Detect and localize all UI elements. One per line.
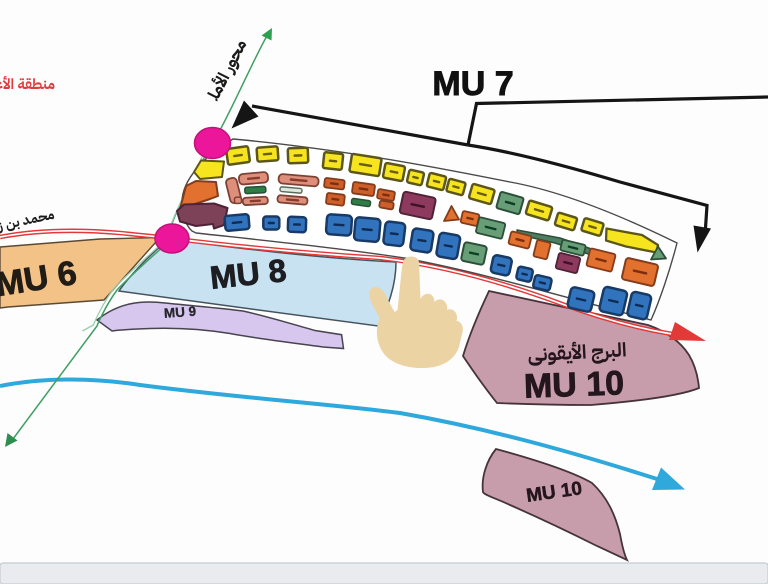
svg-text:MU 10: MU 10 bbox=[523, 364, 624, 405]
svg-text:MU 9: MU 9 bbox=[163, 304, 196, 321]
svg-text:MU 7: MU 7 bbox=[432, 65, 513, 103]
